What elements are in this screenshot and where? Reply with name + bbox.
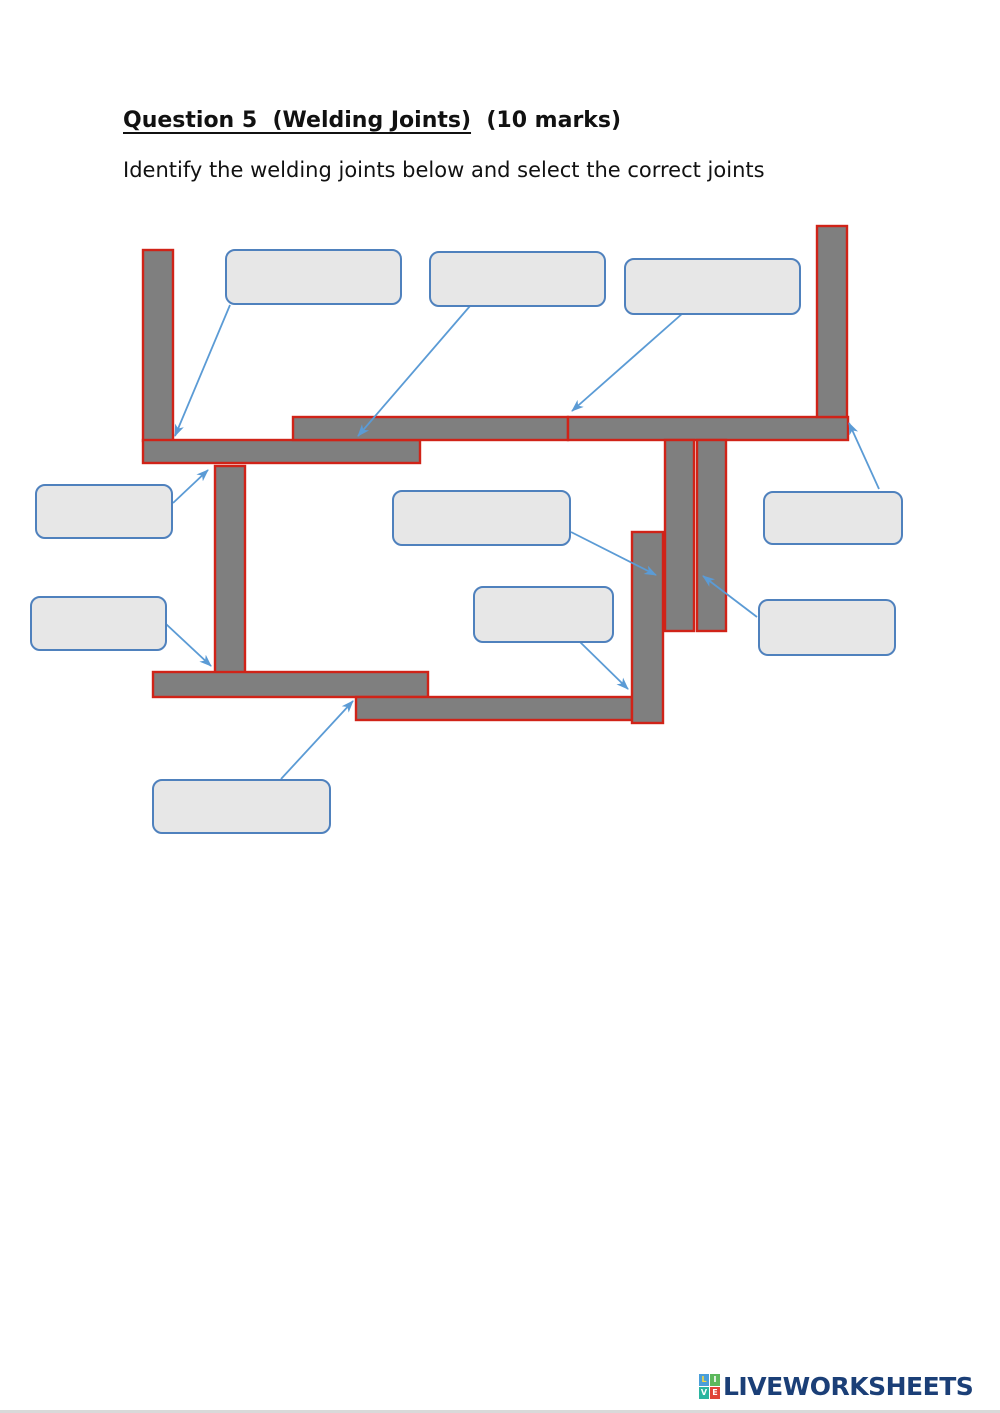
- answer-box-4[interactable]: [35, 484, 173, 539]
- answer-box-9[interactable]: [758, 599, 896, 656]
- answer-box-6[interactable]: [763, 491, 903, 545]
- metal-bar-tee-stem: [215, 466, 245, 673]
- worksheet-page: Question 5 (Welding Joints) (10 marks) I…: [0, 0, 1000, 1413]
- pointer-arrow-5: [166, 624, 211, 666]
- liveworksheets-grid-icon: L I V E: [699, 1374, 720, 1399]
- pointer-arrow-8: [849, 423, 879, 489]
- metal-bar-top-right-vertical: [817, 226, 847, 417]
- metal-bar-bottom-lap-lower: [356, 697, 632, 720]
- metal-bar-pair-right: [697, 440, 726, 631]
- metal-bar-top-lap-upper: [293, 417, 568, 440]
- metal-bar-top-left-vertical: [143, 250, 173, 441]
- logo-letter-l: L: [699, 1374, 709, 1386]
- pointer-arrow-7: [580, 642, 628, 689]
- metal-bar-middle-vertical: [632, 532, 663, 723]
- answer-box-2[interactable]: [429, 251, 606, 307]
- pointer-arrow-10: [281, 701, 353, 779]
- logo-letter-i: I: [710, 1374, 720, 1386]
- metal-bar-pair-left: [665, 440, 694, 631]
- liveworksheets-logo[interactable]: L I V E LIVEWORKSHEETS: [699, 1372, 973, 1401]
- answer-box-3[interactable]: [624, 258, 801, 315]
- answer-box-7[interactable]: [30, 596, 167, 651]
- answer-box-1[interactable]: [225, 249, 402, 305]
- liveworksheets-wordmark: LIVEWORKSHEETS: [723, 1372, 973, 1401]
- answer-box-10[interactable]: [152, 779, 331, 834]
- metal-bar-top-right-piece: [568, 417, 848, 440]
- metal-bar-top-lap-lower: [143, 440, 420, 463]
- pointer-arrow-3: [572, 313, 683, 411]
- pointer-arrow-4: [173, 470, 208, 503]
- answer-box-5[interactable]: [392, 490, 571, 546]
- welding-joints-diagram: [0, 0, 1000, 1413]
- logo-letter-e: E: [710, 1387, 720, 1399]
- pointer-arrow-1: [175, 305, 230, 436]
- metal-bar-bottom-left-horizontal: [153, 672, 428, 697]
- logo-letter-v: V: [699, 1387, 709, 1399]
- answer-box-8[interactable]: [473, 586, 614, 643]
